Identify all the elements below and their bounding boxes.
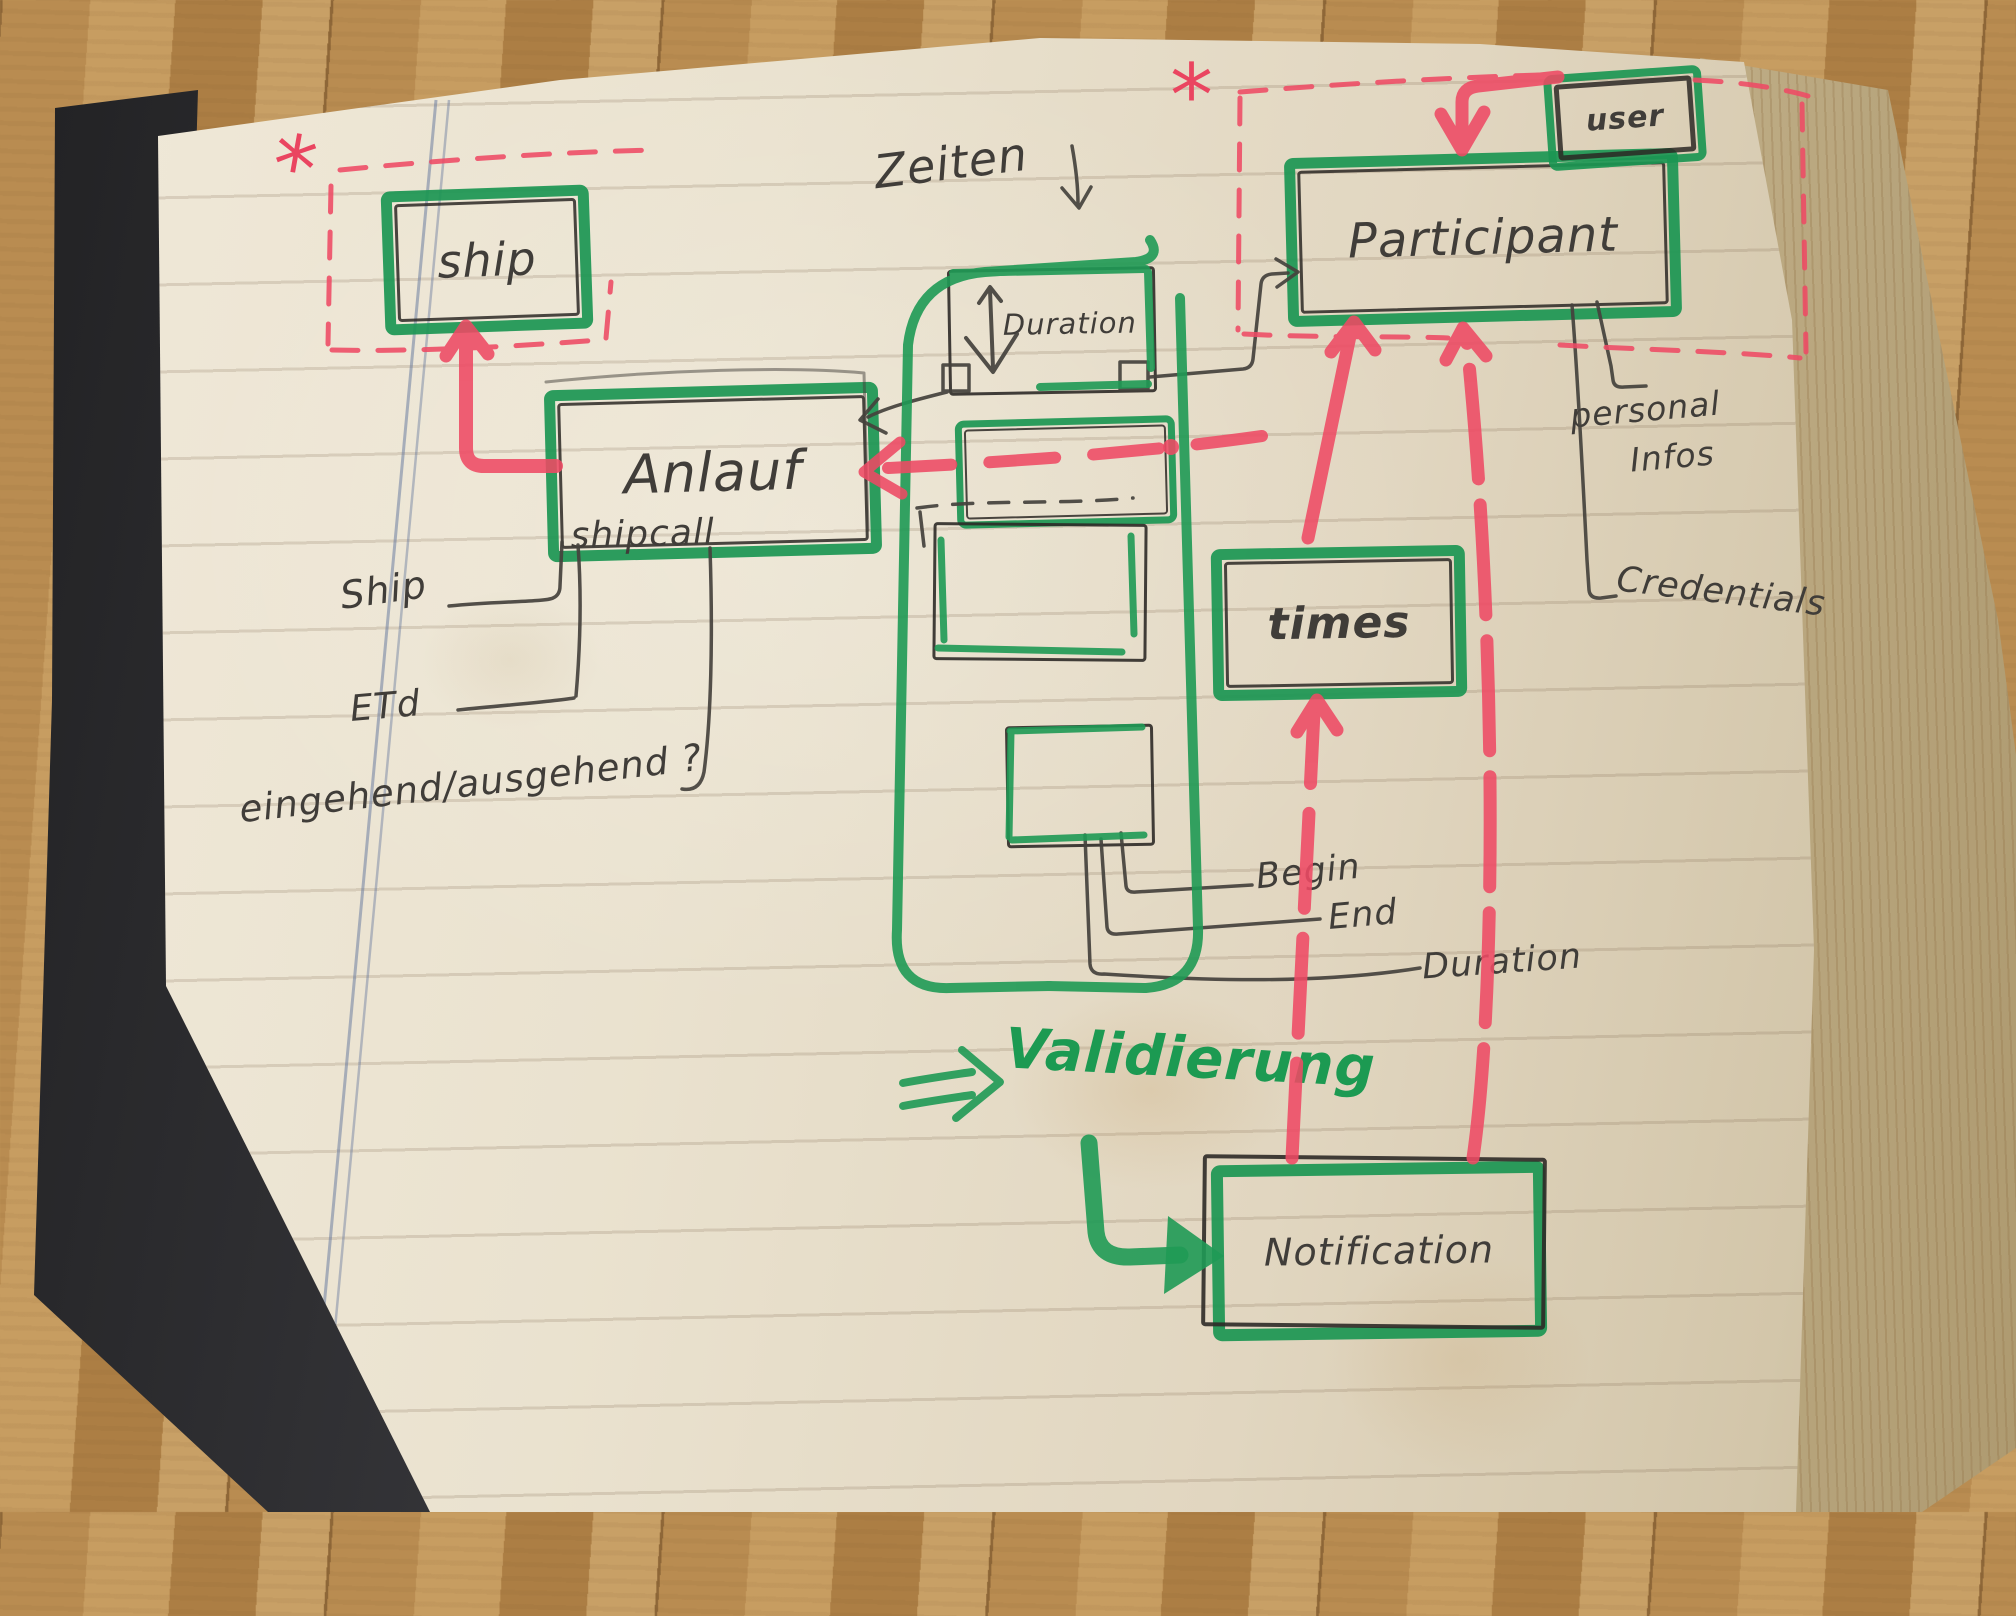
list-box-2 bbox=[932, 522, 1147, 662]
anlauf-label: Anlauf bbox=[623, 438, 803, 506]
duration-box: Duration bbox=[947, 266, 1157, 396]
eta-attr-label: ETd bbox=[348, 683, 422, 730]
shipcall-label: shipcall bbox=[570, 512, 715, 557]
notebook-photo: { "labels": { "ship_entity": "ship", "an… bbox=[0, 0, 2016, 1512]
user-label: user bbox=[1585, 98, 1666, 138]
entity-anlauf: Anlauf shipcall bbox=[544, 382, 882, 563]
entity-times: times bbox=[1211, 545, 1468, 701]
end-attr-label: End bbox=[1326, 892, 1399, 938]
entity-ship: ship bbox=[381, 184, 594, 335]
entity-user: user bbox=[1543, 65, 1707, 172]
personal-infos-label-2: Infos bbox=[1628, 433, 1716, 479]
notification-outline bbox=[1201, 1154, 1547, 1330]
times-label: times bbox=[1267, 596, 1411, 649]
paper-stain bbox=[420, 590, 600, 730]
list-box-1 bbox=[955, 415, 1178, 529]
list-box-3 bbox=[1005, 724, 1155, 849]
entity-participant: Participant bbox=[1284, 148, 1682, 327]
ship-label: ship bbox=[437, 231, 538, 288]
asterisk-right: * bbox=[1170, 46, 1214, 146]
participant-label: Participant bbox=[1347, 206, 1618, 269]
duration-box-label: Duration bbox=[1003, 306, 1138, 342]
